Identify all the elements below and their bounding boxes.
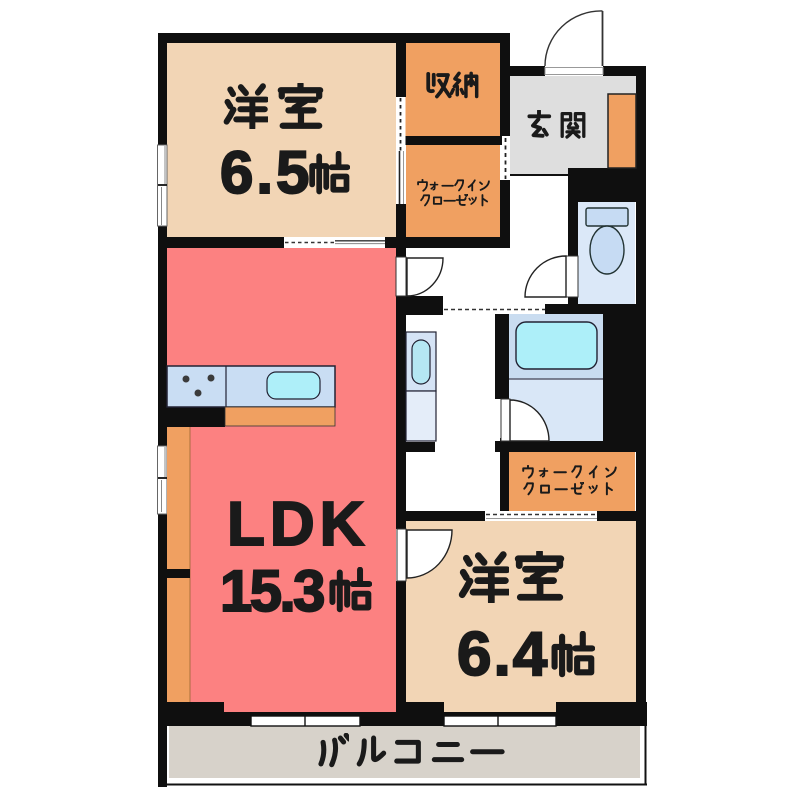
svg-text:LDK: LDK [227, 490, 369, 559]
svg-text:6.4: 6.4 [457, 620, 549, 689]
svg-text:6.5: 6.5 [220, 139, 312, 206]
svg-text:15.3: 15.3 [220, 559, 324, 624]
